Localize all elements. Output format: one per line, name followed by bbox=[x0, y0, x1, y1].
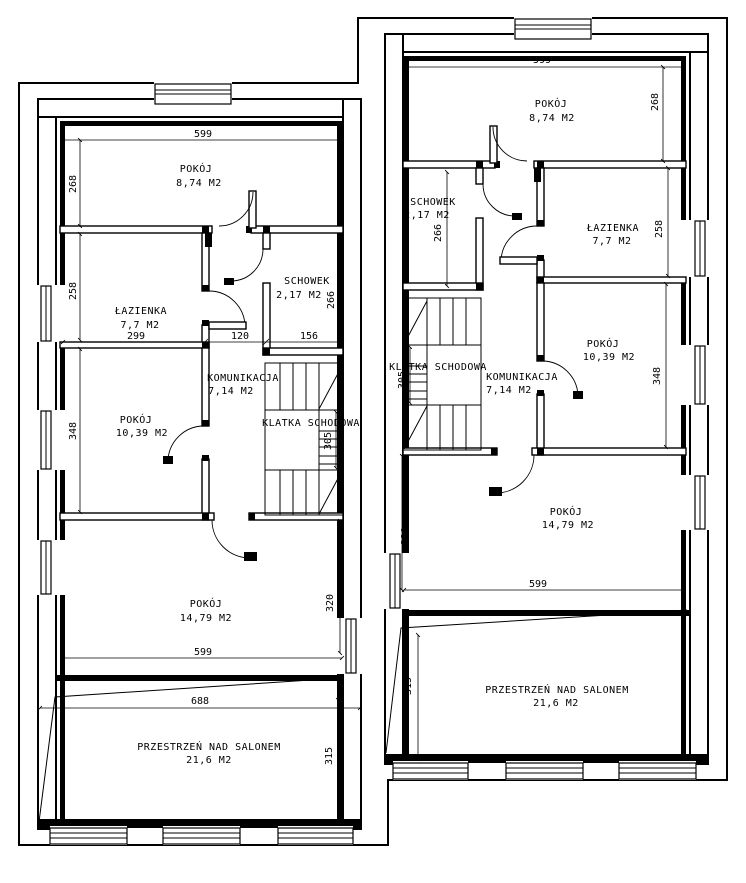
room-label-right-przestrzen: PRZESTRZEŃ NAD SALONEM bbox=[485, 683, 628, 696]
dim-right-305: 305 bbox=[397, 371, 408, 389]
dim-right-599-top: 599 bbox=[533, 55, 551, 66]
room-label-left-przestrzen: PRZESTRZEŃ NAD SALONEM bbox=[137, 740, 280, 753]
dim-left-320: 320 bbox=[325, 594, 336, 612]
room-area-left-pokoj-dolny: 14,79 M2 bbox=[180, 613, 232, 624]
dim-left-258: 258 bbox=[68, 282, 79, 300]
room-area-left-przestrzen: 21,6 M2 bbox=[186, 755, 232, 766]
room-label-left-klatka: KLATKA SCHODOWA bbox=[262, 418, 360, 429]
room-area-left-komunikacja: 7,14 M2 bbox=[208, 386, 254, 397]
dim-right-268: 268 bbox=[650, 93, 661, 111]
room-label-right-komunikacja: KOMUNIKACJA bbox=[486, 372, 558, 383]
room-area-right-przestrzen: 21,6 M2 bbox=[533, 698, 579, 709]
room-area-right-komunikacja: 7,14 M2 bbox=[486, 385, 532, 396]
room-area-left-pokoj-sredni: 10,39 M2 bbox=[116, 428, 168, 439]
room-label-left-lazienka: ŁAZIENKA bbox=[114, 306, 167, 317]
dim-left-156: 156 bbox=[300, 331, 318, 342]
dim-left-315: 315 bbox=[324, 747, 335, 765]
room-area-left-schowek: 2,17 M2 bbox=[276, 290, 322, 301]
dim-left-299: 299 bbox=[127, 331, 145, 342]
dim-left-268: 268 bbox=[68, 175, 79, 193]
dim-left-688: 688 bbox=[191, 696, 209, 707]
dim-left-266: 266 bbox=[326, 291, 337, 309]
room-label-left-schowek: SCHOWEK bbox=[284, 276, 330, 287]
room-label-right-pokoj-gorny: POKÓJ bbox=[535, 97, 568, 110]
left-unit-dimension-lines bbox=[40, 140, 360, 824]
dim-right-320: 320 bbox=[400, 527, 411, 545]
room-label-right-schowek: SCHOWEK bbox=[410, 197, 456, 208]
dim-right-258: 258 bbox=[654, 220, 665, 238]
dim-right-599-bottom: 599 bbox=[529, 579, 547, 590]
dim-left-348: 348 bbox=[68, 422, 79, 440]
floor-plan-canvas: POKÓJ 8,74 M2 ŁAZIENKA 7,7 M2 SCHOWEK 2,… bbox=[0, 0, 746, 883]
dim-right-348: 348 bbox=[652, 367, 663, 385]
dim-left-120: 120 bbox=[231, 331, 249, 342]
dim-right-266: 266 bbox=[433, 224, 444, 242]
dim-left-305: 305 bbox=[323, 432, 334, 450]
room-area-right-pokoj-sredni: 10,39 M2 bbox=[583, 352, 635, 363]
room-label-right-pokoj-dolny: POKÓJ bbox=[550, 505, 583, 518]
dim-left-599-top: 599 bbox=[194, 129, 212, 140]
room-label-left-pokoj-gorny: POKÓJ bbox=[180, 162, 213, 175]
floor-plan-drawing: POKÓJ 8,74 M2 ŁAZIENKA 7,7 M2 SCHOWEK 2,… bbox=[0, 0, 746, 883]
room-label-left-pokoj-sredni: POKÓJ bbox=[120, 413, 153, 426]
room-label-right-pokoj-sredni: POKÓJ bbox=[587, 337, 620, 350]
right-unit-staircase bbox=[403, 298, 481, 450]
room-area-right-lazienka: 7,7 M2 bbox=[592, 236, 631, 247]
room-label-right-lazienka: ŁAZIENKA bbox=[586, 223, 639, 234]
room-area-right-schowek: 2,17 M2 bbox=[404, 210, 450, 221]
room-area-right-pokoj-dolny: 14,79 M2 bbox=[542, 520, 594, 531]
room-label-left-komunikacja: KOMUNIKACJA bbox=[207, 373, 279, 384]
room-label-left-pokoj-dolny: POKÓJ bbox=[190, 597, 223, 610]
right-unit-walls bbox=[383, 17, 710, 780]
dim-right-315: 315 bbox=[403, 677, 414, 695]
dim-left-599-bottom: 599 bbox=[194, 647, 212, 658]
left-unit-walls bbox=[36, 82, 363, 845]
room-area-left-lazienka: 7,7 M2 bbox=[120, 320, 159, 331]
room-area-right-pokoj-gorny: 8,74 M2 bbox=[529, 113, 575, 124]
room-area-left-pokoj-gorny: 8,74 M2 bbox=[176, 178, 222, 189]
right-roof-slope-line bbox=[386, 610, 687, 753]
